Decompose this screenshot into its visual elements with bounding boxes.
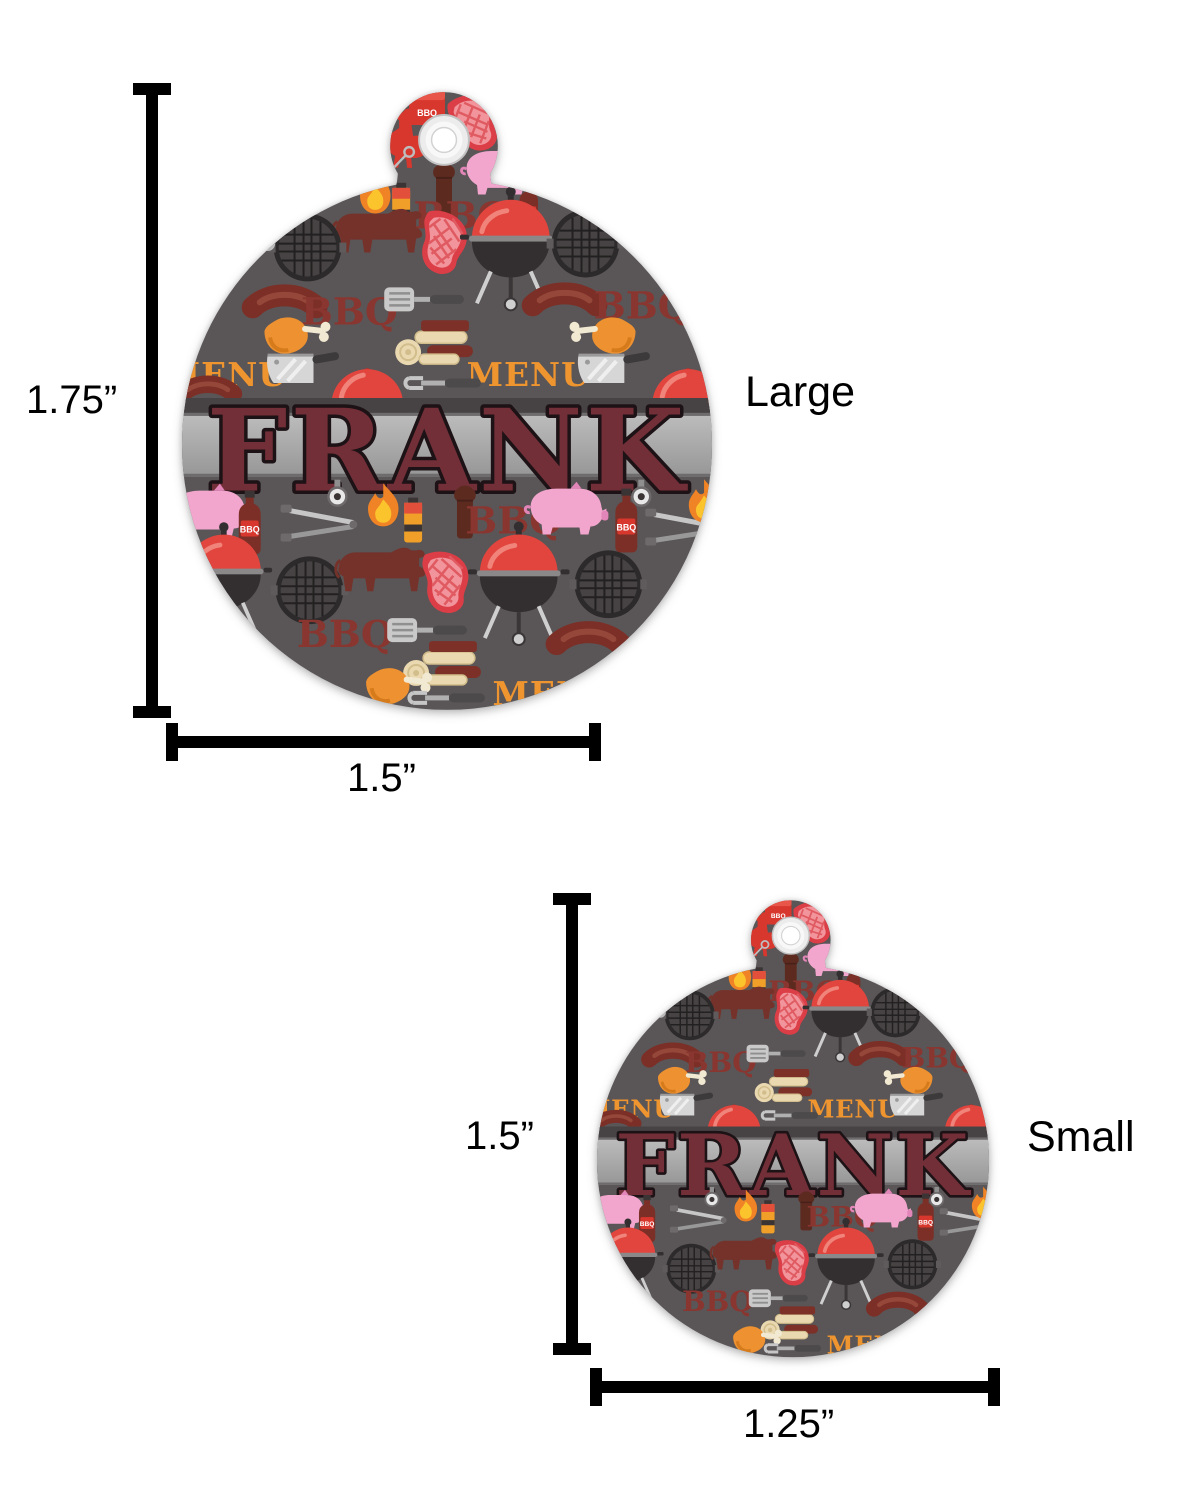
small-size-label: Small — [1027, 1114, 1135, 1161]
large-width-line-cap-left — [166, 723, 178, 761]
small-height-line-cap-bottom — [553, 1343, 591, 1355]
small-width-line-cap-right — [988, 1368, 1000, 1406]
small-height-line — [566, 895, 578, 1355]
small-width-label: 1.25” — [743, 1402, 834, 1446]
large-width-line — [166, 736, 601, 748]
small-tag-preview — [594, 894, 992, 1359]
large-width-label: 1.5” — [347, 756, 416, 800]
large-height-line-cap-top — [133, 83, 171, 95]
large-size-label: Large — [745, 369, 855, 416]
large-height-line-cap-bottom — [133, 706, 171, 718]
small-width-line-cap-left — [590, 1368, 602, 1406]
product-size-diagram: { "design": { "pet_name": "FRANK", "word… — [0, 0, 1184, 1500]
large-height-line — [146, 85, 158, 718]
large-height-label: 1.75” — [26, 378, 117, 422]
large-tag-preview — [178, 84, 716, 712]
large-width-line-cap-right — [589, 723, 601, 761]
small-height-label: 1.5” — [465, 1114, 534, 1158]
small-width-line — [590, 1381, 1000, 1393]
small-height-line-cap-top — [553, 893, 591, 905]
